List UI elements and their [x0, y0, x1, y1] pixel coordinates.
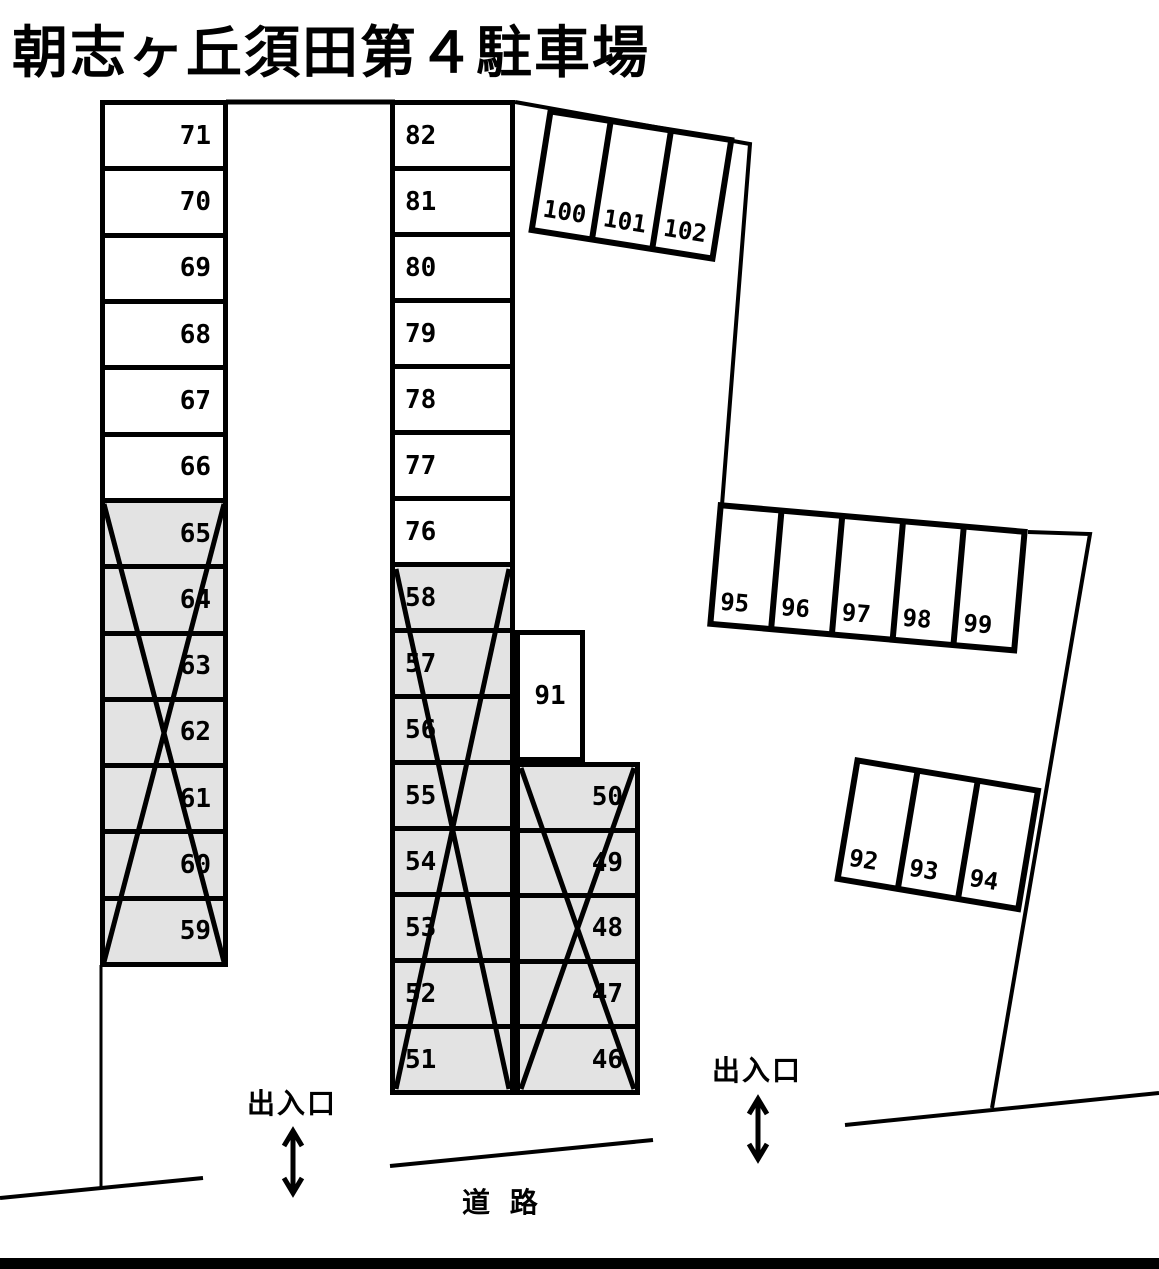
space-66: 66 — [105, 437, 223, 498]
entrance-label-left: 出入口 — [247, 1082, 337, 1122]
road-edge-left — [0, 1178, 203, 1198]
entrance-arrow-left — [284, 1131, 302, 1193]
space-65: 65 — [105, 503, 223, 564]
space-56: 56 — [395, 699, 510, 760]
space-101: 101 — [595, 124, 667, 245]
space-93: 93 — [901, 774, 974, 896]
entrance-arrow-right — [749, 1099, 767, 1159]
space-61: 61 — [105, 768, 223, 829]
space-70: 70 — [105, 171, 223, 232]
column-middle: 82 81 80 79 78 77 76 58 57 56 55 54 53 5… — [390, 100, 515, 1095]
group-95-99: 95 96 97 98 99 — [707, 502, 1028, 654]
space-96: 96 — [774, 514, 839, 631]
column-left: 71 70 69 68 67 66 65 64 63 62 61 60 59 — [100, 100, 228, 967]
parking-map: 朝志ヶ丘須田第４駐車場 71 70 69 68 67 66 65 64 63 6… — [0, 0, 1159, 1269]
space-63: 63 — [105, 636, 223, 697]
space-77: 77 — [395, 435, 510, 496]
space-78: 78 — [395, 369, 510, 430]
space-100: 100 — [535, 115, 607, 236]
space-79: 79 — [395, 303, 510, 364]
space-49: 49 — [520, 833, 635, 894]
group-100-102: 100 101 102 — [528, 108, 734, 262]
space-57: 57 — [395, 633, 510, 694]
road-label: 道 路 — [462, 1181, 544, 1221]
space-91: 91 — [515, 630, 585, 762]
space-54: 54 — [395, 831, 510, 892]
space-51: 51 — [395, 1029, 510, 1090]
space-95: 95 — [714, 509, 779, 626]
bottom-border-bar — [0, 1258, 1159, 1269]
space-58: 58 — [395, 567, 510, 628]
space-71: 71 — [105, 105, 223, 166]
space-99: 99 — [957, 530, 1022, 647]
space-53: 53 — [395, 897, 510, 958]
space-48: 48 — [520, 898, 635, 959]
space-64: 64 — [105, 569, 223, 630]
space-80: 80 — [395, 237, 510, 298]
space-82: 82 — [395, 105, 510, 166]
space-60: 60 — [105, 834, 223, 895]
space-98: 98 — [896, 524, 961, 641]
space-55: 55 — [395, 765, 510, 826]
space-46: 46 — [520, 1029, 635, 1090]
space-102: 102 — [656, 134, 728, 255]
road-edge-right — [845, 1093, 1159, 1125]
space-92: 92 — [841, 764, 914, 886]
space-52: 52 — [395, 963, 510, 1024]
space-97: 97 — [835, 519, 900, 636]
space-68: 68 — [105, 304, 223, 365]
group-92-94: 92 93 94 — [834, 757, 1041, 912]
column-right-gray: 50 49 48 47 46 — [515, 762, 640, 1095]
space-62: 62 — [105, 702, 223, 763]
page-title: 朝志ヶ丘須田第４駐車場 — [12, 8, 650, 89]
space-67: 67 — [105, 370, 223, 431]
space-69: 69 — [105, 238, 223, 299]
space-76: 76 — [395, 501, 510, 562]
road-edge-center — [390, 1140, 653, 1166]
space-94: 94 — [961, 784, 1034, 906]
space-47: 47 — [520, 964, 635, 1025]
space-50: 50 — [520, 767, 635, 828]
space-81: 81 — [395, 171, 510, 232]
entrance-label-right: 出入口 — [712, 1049, 802, 1089]
space-59: 59 — [105, 901, 223, 962]
